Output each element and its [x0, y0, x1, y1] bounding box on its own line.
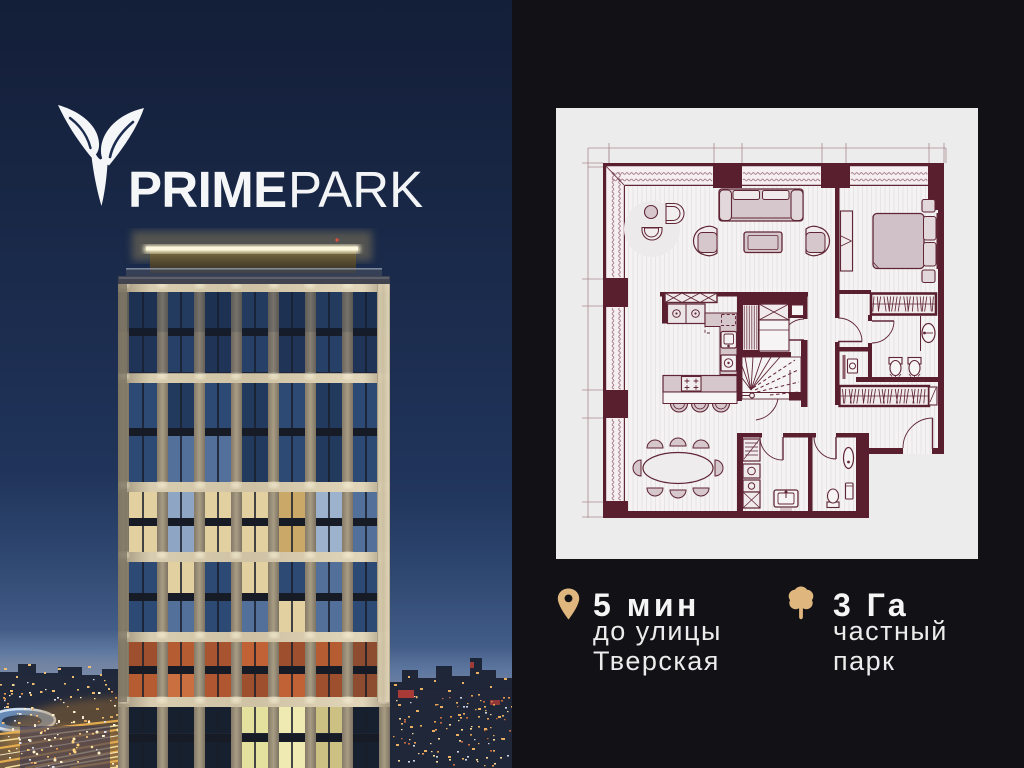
svg-text:PARK: PARK	[288, 161, 423, 218]
svg-text:PRIME: PRIME	[128, 161, 287, 218]
